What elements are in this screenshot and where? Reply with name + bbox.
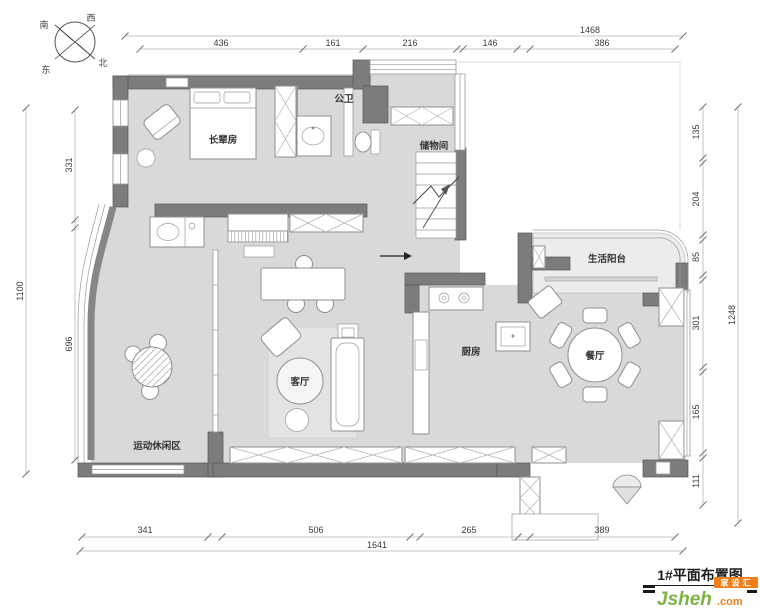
compass-south: 南 (39, 19, 48, 30)
dim-top-1: 161 (325, 38, 340, 48)
room-label-storage: 储物间 (420, 140, 449, 152)
pillow (194, 92, 220, 103)
dim-right-1: 204 (691, 191, 701, 206)
entry-side-window (656, 462, 670, 474)
compass-west: 西 (86, 13, 95, 23)
dim-bottom-3: 389 (594, 525, 609, 535)
floor-plan-page: 长辈房 公卫 储物间 生活阳台 厨房 餐厅 客厅 运动休闲区 南 西 东 北 1… (0, 0, 760, 610)
dim-right-total: 1248 (727, 305, 737, 325)
stove-counter (429, 287, 483, 310)
dim-right-3: 301 (691, 315, 701, 330)
dim-left-total: 1100 (15, 281, 25, 300)
dimension-top: 1468 436 161 216 146 386 (122, 25, 687, 53)
washbasin (157, 224, 179, 241)
piano-bench (244, 246, 274, 257)
dim-top-3: 146 (482, 38, 497, 48)
hall-cabinet (290, 214, 363, 232)
room-label-leisure: 运动休闲区 (133, 440, 181, 452)
compass-rose: 南 西 东 北 (39, 13, 107, 75)
kitchen-island (496, 322, 530, 351)
balcony-window-column (533, 246, 545, 268)
window-top-wall (166, 78, 188, 87)
dim-bottom-0: 341 (137, 525, 152, 535)
burner (459, 293, 469, 303)
entry-window-column (520, 477, 540, 519)
dimension-left: 1100 331 696 (15, 105, 79, 478)
compass-north: 北 (98, 58, 107, 68)
bay-window-top (370, 60, 456, 74)
dim-left-0: 331 (64, 157, 74, 172)
dim-bottom-total: 1641 (367, 540, 387, 550)
wardrobe (275, 86, 296, 157)
sofa (331, 338, 364, 431)
pillow (224, 92, 250, 103)
faucet (312, 127, 315, 130)
dim-right-0: 135 (691, 124, 701, 139)
dim-right-5: 111 (691, 474, 701, 488)
room-label-life-balcony: 生活阳台 (588, 253, 627, 265)
dim-top-total: 1468 (580, 25, 600, 35)
piano-keys (228, 231, 288, 242)
dim-top-4: 386 (594, 38, 609, 48)
landscape-cone (613, 475, 641, 504)
floor-plan-canvas: 长辈房 公卫 储物间 生活阳台 厨房 餐厅 客厅 运动休闲区 南 西 东 北 1… (0, 0, 760, 610)
burner (439, 293, 449, 303)
washbasin-cabinet (150, 217, 204, 247)
sliding-door-rail (545, 277, 657, 281)
side-table (137, 149, 155, 167)
logo-tld: .com (717, 596, 743, 608)
title-block: 1#平面布置图 家设汇 Jsheh .com (643, 567, 758, 610)
dim-top-2: 216 (402, 38, 417, 48)
dimension-right: 135 204 85 301 165 111 1248 (691, 104, 742, 527)
dim-right-4: 165 (691, 404, 701, 419)
compass-east: 东 (41, 64, 50, 75)
room-label-living: 客厅 (289, 376, 310, 388)
toilet (355, 130, 380, 154)
logo-wordmark: Jsheh (657, 589, 712, 610)
dim-bottom-1: 506 (308, 525, 323, 535)
dim-right-2: 85 (691, 252, 701, 262)
room-label-dining: 餐厅 (584, 350, 605, 362)
staircase (413, 152, 459, 238)
dim-left-1: 696 (64, 336, 74, 351)
upper-floor-outline (458, 62, 680, 230)
floor-areas (91, 74, 686, 463)
ottoman (286, 409, 309, 432)
dim-top-0: 436 (213, 38, 228, 48)
kitchen-counter-left (413, 312, 429, 434)
room-label-public-bath: 公卫 (334, 94, 354, 105)
room-label-elder-bedroom: 长辈房 (209, 134, 238, 146)
sink-basin (302, 127, 324, 145)
dim-bottom-2: 265 (461, 525, 476, 535)
logo-badge-text: 家设汇 (721, 578, 754, 588)
living-partition (213, 250, 218, 432)
room-label-kitchen: 厨房 (461, 346, 480, 358)
porch-outline (512, 514, 598, 540)
storage-closet (391, 107, 453, 125)
